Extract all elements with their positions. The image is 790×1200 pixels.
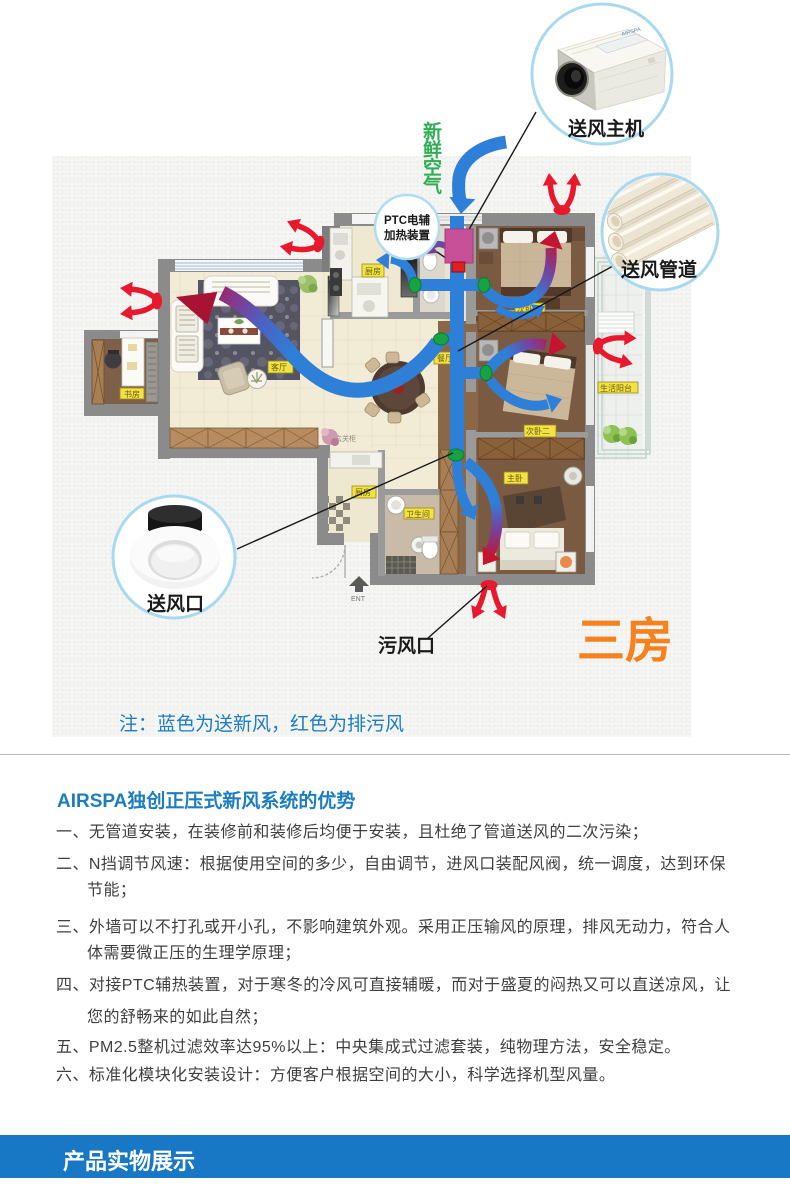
svg-text:次卧二: 次卧二 bbox=[526, 426, 550, 436]
svg-text:送风主机: 送风主机 bbox=[568, 117, 644, 140]
svg-text:卫生间: 卫生间 bbox=[406, 509, 430, 519]
svg-text:气: 气 bbox=[422, 174, 442, 197]
svg-text:送风口: 送风口 bbox=[147, 592, 204, 615]
svg-text:加热装置: 加热装置 bbox=[383, 228, 430, 242]
svg-text:三房: 三房 bbox=[577, 615, 673, 668]
svg-text:客厅: 客厅 bbox=[271, 362, 287, 372]
svg-text:厨房: 厨房 bbox=[365, 266, 381, 276]
svg-text:送风管道: 送风管道 bbox=[621, 258, 697, 281]
svg-text:PTC电辅: PTC电辅 bbox=[384, 213, 430, 227]
svg-text:污风口: 污风口 bbox=[378, 635, 435, 657]
svg-text:书房: 书房 bbox=[124, 389, 140, 399]
svg-text:主卧: 主卧 bbox=[507, 473, 523, 483]
svg-text:ENT: ENT bbox=[351, 596, 366, 603]
svg-text:生活阳台: 生活阳台 bbox=[600, 383, 632, 393]
